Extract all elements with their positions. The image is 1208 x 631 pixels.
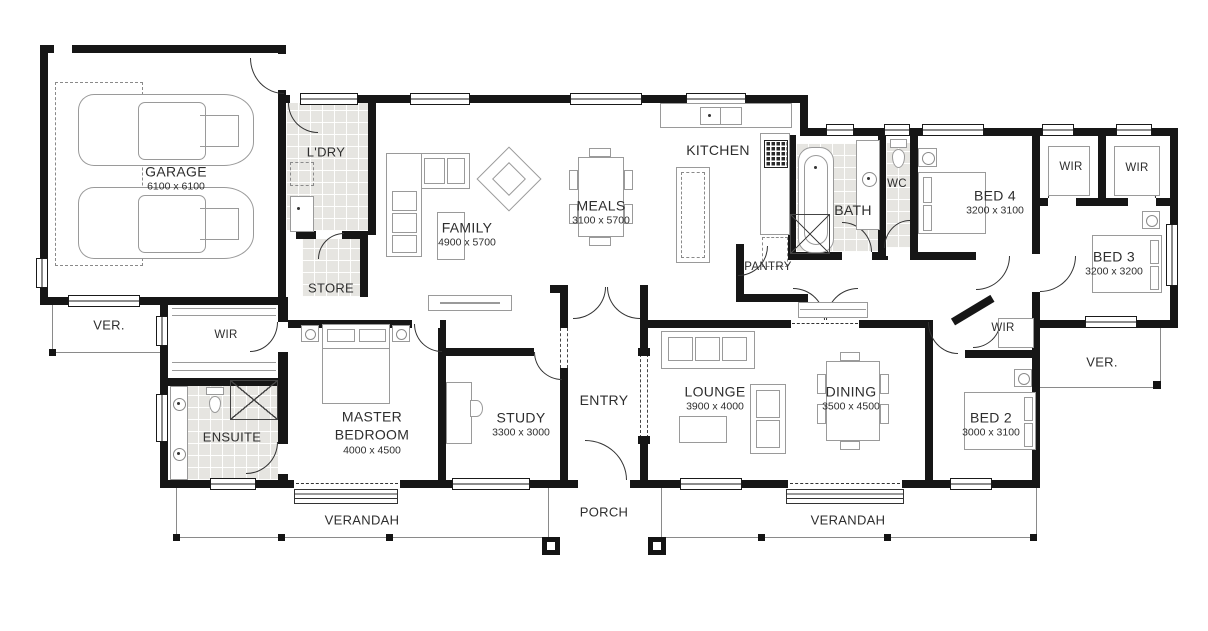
- wall: [1098, 135, 1106, 206]
- downlight-circle: [922, 152, 935, 165]
- room-label-wir-bed4: WIR: [1059, 161, 1082, 173]
- porch-edge: [548, 488, 549, 538]
- toilet-cistern: [890, 139, 907, 148]
- laundry-tub: [290, 196, 314, 232]
- window: [826, 124, 854, 136]
- sofa-cushion: [722, 337, 747, 361]
- door-opening: [278, 444, 288, 474]
- room-label-ldry: L'DRY: [307, 145, 345, 160]
- verandah-edge: [52, 305, 53, 353]
- sofa-cushion: [392, 213, 417, 233]
- front-door-opening: [578, 480, 630, 488]
- door-arc: [414, 324, 442, 352]
- chair: [589, 148, 611, 157]
- appliance-space: [290, 162, 314, 186]
- room-label-dining: DINING3500 x 4500: [822, 384, 880, 413]
- room-label-bed4: BED 43200 x 3100: [966, 188, 1024, 217]
- window: [1042, 124, 1074, 136]
- window: [36, 258, 48, 288]
- verandah-post: [49, 349, 56, 356]
- pillow: [1024, 423, 1033, 447]
- shower: [230, 380, 278, 420]
- linen-door-line: [800, 309, 866, 310]
- window: [950, 478, 992, 490]
- window: [452, 478, 530, 490]
- wardrobe-shelf: [172, 315, 276, 316]
- porch-edge: [661, 488, 662, 538]
- verandah-steps: [294, 489, 398, 504]
- tap-dot: [297, 207, 300, 210]
- chair: [880, 404, 889, 424]
- basin-dot: [177, 402, 180, 405]
- pillow: [359, 329, 386, 342]
- wall: [965, 350, 1040, 358]
- sliding-door-opening: [294, 480, 400, 488]
- door-opening: [278, 322, 288, 352]
- verandah-edge: [1160, 328, 1161, 388]
- sofa-cushion: [392, 235, 417, 253]
- door-opening: [1128, 198, 1156, 206]
- door-arc: [976, 256, 1010, 290]
- bay-window-opening: [788, 480, 902, 488]
- door-opening: [791, 320, 859, 328]
- verandah-post: [278, 534, 285, 541]
- wall: [40, 45, 286, 53]
- verandah-post: [884, 534, 891, 541]
- chair: [840, 352, 860, 361]
- verandah-post: [758, 534, 765, 541]
- room-label-lounge: LOUNGE3900 x 4000: [685, 384, 746, 413]
- island-bench-inner: [681, 172, 705, 258]
- room-label-wc: WC: [887, 178, 907, 190]
- car-tail: [200, 208, 239, 241]
- wall: [910, 135, 918, 260]
- door-opening: [842, 252, 872, 260]
- window: [922, 124, 984, 136]
- door-arc: [1040, 256, 1076, 292]
- car: [78, 187, 254, 259]
- window: [884, 124, 910, 136]
- pillow: [923, 205, 932, 231]
- lamp: [396, 329, 407, 340]
- room-label-ver-left: VER.: [93, 318, 125, 333]
- wall-gap: [54, 43, 72, 55]
- opening-dashed-line: [792, 323, 858, 324]
- room-label-wir-bed3: WIR: [1125, 162, 1148, 174]
- bay-window-sill: [786, 489, 904, 504]
- door-opening: [1048, 198, 1076, 206]
- sofa-cushion: [392, 191, 417, 211]
- chair: [569, 170, 578, 190]
- room-label-verandah-right: VERANDAH: [811, 513, 886, 528]
- verandah-edge: [176, 537, 548, 538]
- room-label-kitchen: KITCHEN: [686, 142, 750, 158]
- shower: [790, 214, 830, 254]
- wall: [638, 348, 650, 356]
- verandah-post: [173, 534, 180, 541]
- room-label-ensuite: ENSUITE: [203, 430, 261, 445]
- front-door-arc: [585, 440, 627, 480]
- window: [570, 93, 642, 105]
- window: [680, 478, 742, 490]
- car-roof: [138, 102, 206, 160]
- room-label-wir-bed2: WIR: [991, 322, 1014, 334]
- pillow: [1024, 397, 1033, 421]
- window: [156, 316, 168, 346]
- wall: [360, 239, 368, 297]
- verandah-edge: [666, 537, 1037, 538]
- sink-divider: [720, 108, 721, 124]
- door-opening: [1032, 254, 1040, 292]
- car: [78, 94, 254, 166]
- toilet-cistern: [206, 387, 224, 395]
- tv-unit-line: [440, 302, 500, 304]
- door-arc: [250, 322, 278, 352]
- tap-dot: [814, 166, 817, 169]
- coffee-table: [679, 416, 727, 443]
- car-tail: [200, 115, 239, 148]
- sofa-cushion: [447, 158, 465, 184]
- window: [1166, 224, 1178, 286]
- window: [210, 478, 256, 490]
- chair: [840, 441, 860, 450]
- pillow: [1150, 266, 1159, 290]
- room-label-verandah-left: VERANDAH: [325, 513, 400, 528]
- floor-plan: GARAGE6100 x 6100 L'DRY STORE FAMILY4900…: [0, 0, 1208, 631]
- double-door-arc: [607, 287, 640, 319]
- window: [1116, 124, 1152, 136]
- room-label-meals: MEALS3100 x 5700: [572, 198, 630, 227]
- entry-sidelight-window: [640, 354, 648, 438]
- lamp: [305, 329, 316, 340]
- sofa-cushion: [668, 337, 693, 361]
- room-label-family: FAMILY4900 x 5700: [438, 220, 496, 249]
- downlight-circle: [1146, 215, 1158, 227]
- downlight-circle: [1018, 373, 1030, 385]
- desk: [446, 382, 472, 444]
- wardrobe-shelf: [172, 362, 276, 363]
- door-opening: [886, 248, 910, 256]
- window: [1085, 316, 1137, 328]
- wall: [368, 103, 376, 235]
- kitchen-sink: [700, 107, 742, 125]
- verandah-post: [1030, 534, 1037, 541]
- window: [68, 295, 140, 307]
- room-label-ver-right: VER.: [1086, 355, 1118, 370]
- wall: [560, 285, 568, 488]
- chair: [624, 170, 633, 190]
- sofa-cushion: [424, 158, 445, 184]
- sofa-cushion: [695, 337, 720, 361]
- verandah-edge: [176, 488, 177, 538]
- cooktop: [764, 140, 788, 168]
- pillow: [1150, 240, 1159, 264]
- verandah-post: [386, 534, 393, 541]
- door-arc: [534, 352, 562, 380]
- bed-line: [323, 348, 389, 349]
- pillow: [923, 177, 932, 203]
- window: [156, 394, 168, 442]
- window: [410, 93, 470, 105]
- room-label-bed2: BED 23000 x 3100: [962, 410, 1020, 439]
- car-roof: [138, 195, 206, 253]
- verandah-post: [1153, 381, 1161, 389]
- room-label-master: MASTER BEDROOM4000 x 4500: [326, 408, 418, 457]
- room-label-wir-master: WIR: [214, 329, 237, 341]
- room-label-store: STORE: [308, 281, 354, 296]
- room-label-entry: ENTRY: [580, 392, 629, 408]
- wall: [1032, 135, 1040, 329]
- desk-chair: [470, 400, 483, 417]
- chair: [880, 374, 889, 394]
- wall: [648, 320, 925, 328]
- pillow: [327, 329, 355, 342]
- room-label-porch: PORCH: [580, 505, 628, 520]
- armchair-cushion: [756, 420, 780, 448]
- basin-dot: [867, 177, 870, 180]
- verandah-edge: [52, 352, 160, 353]
- door-arc: [250, 58, 284, 94]
- wall: [638, 436, 650, 444]
- chair: [589, 237, 611, 246]
- room-label-bath: BATH: [834, 202, 872, 218]
- wardrobe-shelf: [172, 308, 276, 309]
- opening-dashed-line: [790, 483, 900, 484]
- wardrobe-shelf: [172, 370, 276, 371]
- room-label-pantry: PANTRY: [744, 261, 791, 273]
- verandah-edge: [1040, 387, 1161, 388]
- basin-dot: [177, 452, 180, 455]
- double-door-arc: [573, 287, 606, 319]
- verandah-edge: [1036, 488, 1037, 538]
- room-label-bed3: BED 33200 x 3200: [1085, 249, 1143, 278]
- room-label-study: STUDY3300 x 3000: [492, 410, 550, 439]
- sliding-door-dashed-line: [296, 483, 398, 484]
- tap-dot: [708, 114, 711, 117]
- porch-post: [542, 537, 560, 555]
- porch-post: [648, 537, 666, 555]
- wall: [550, 285, 562, 293]
- armchair-cushion: [756, 390, 780, 418]
- linen-cupboard: [798, 302, 868, 318]
- wall: [925, 328, 933, 480]
- room-label-garage: GARAGE6100 x 6100: [145, 164, 207, 193]
